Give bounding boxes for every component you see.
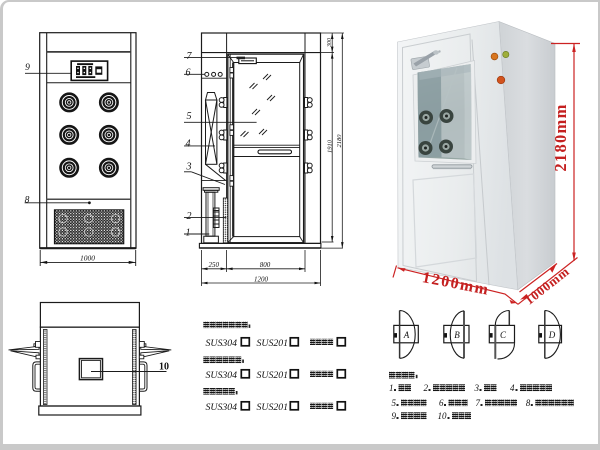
svg-text:B: B — [454, 330, 460, 340]
svg-text:SUS304: SUS304 — [206, 338, 238, 349]
svg-text:10: 10 — [159, 362, 169, 373]
svg-text:300: 300 — [327, 38, 333, 48]
svg-text:7: 7 — [476, 398, 481, 408]
svg-text:6: 6 — [439, 398, 444, 408]
svg-text:1910: 1910 — [326, 139, 333, 153]
svg-text:D: D — [548, 330, 556, 340]
svg-text:5: 5 — [392, 398, 397, 408]
svg-text:4: 4 — [186, 138, 191, 149]
svg-text:SUS304: SUS304 — [206, 370, 238, 381]
svg-text:8: 8 — [526, 398, 531, 408]
svg-text:5: 5 — [187, 111, 192, 122]
svg-text:1000: 1000 — [80, 253, 95, 262]
svg-text:800: 800 — [260, 261, 271, 269]
svg-text:250: 250 — [209, 261, 220, 269]
svg-text:9: 9 — [392, 411, 397, 421]
svg-text:9: 9 — [25, 63, 30, 73]
svg-text:1: 1 — [389, 383, 394, 393]
svg-text:6: 6 — [186, 68, 191, 79]
svg-text:C: C — [500, 330, 507, 340]
svg-text:8: 8 — [25, 195, 30, 205]
svg-text:1200: 1200 — [254, 275, 269, 283]
svg-text:1: 1 — [186, 227, 191, 238]
svg-text:3: 3 — [474, 383, 480, 393]
svg-text:2: 2 — [424, 383, 429, 393]
svg-text:A: A — [403, 330, 410, 340]
svg-text:SUS304: SUS304 — [206, 402, 238, 413]
svg-text:SUS201: SUS201 — [257, 370, 289, 381]
svg-text:7: 7 — [187, 51, 193, 62]
svg-text:SUS201: SUS201 — [257, 338, 289, 349]
svg-text:SUS201: SUS201 — [257, 402, 289, 413]
svg-text:10: 10 — [438, 411, 448, 421]
svg-text:2180: 2180 — [336, 134, 343, 148]
svg-text:3: 3 — [186, 162, 192, 173]
svg-text:2: 2 — [187, 211, 192, 222]
svg-text:2180mm: 2180mm — [551, 103, 570, 171]
svg-text:4: 4 — [510, 383, 515, 393]
